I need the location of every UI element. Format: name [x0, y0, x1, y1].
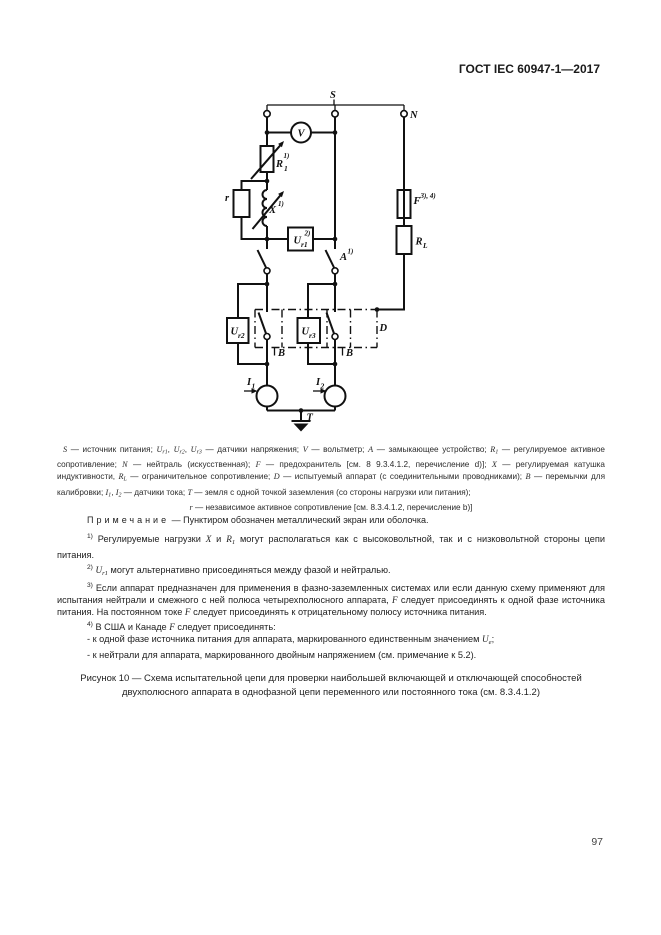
- svg-text:3), 4): 3), 4): [420, 192, 436, 200]
- footnote-4: 4) В США и Канаде F следует присоединять…: [57, 619, 605, 633]
- footnote-1: 1) Регулируемые нагрузки X и R1 могут ра…: [57, 531, 605, 562]
- footnote-2: 2) Ur1 могут альтернативно присоединятьс…: [57, 562, 605, 580]
- svg-text:1): 1): [284, 152, 290, 160]
- apparatus-d-outline: D B B: [255, 310, 388, 360]
- label-a: A: [339, 252, 347, 263]
- label-n: N: [409, 110, 418, 121]
- current-sensor-i1: I 1: [244, 377, 278, 407]
- circuit-diagram: S N V R 1 1): [215, 85, 450, 445]
- page-number: 97: [591, 836, 603, 848]
- svg-text:1): 1): [348, 248, 354, 256]
- footnote-2-marker: 2): [87, 564, 93, 571]
- svg-text:1): 1): [278, 200, 284, 208]
- label-r: r: [225, 193, 230, 204]
- note-label: Примечание: [87, 515, 169, 525]
- figure-legend: S — источник питания; Ur1, Ur2, Ur3 — да…: [57, 444, 605, 502]
- sensor-ur1: U r1 2): [267, 228, 335, 251]
- label-d: D: [379, 323, 388, 334]
- left-branch: R 1 1) r X 1): [225, 117, 289, 386]
- figure-legend-last-line: r — независимое активное сопротивление […: [57, 502, 605, 514]
- svg-text:L: L: [422, 241, 428, 250]
- footnote-4-item-1: - к одной фазе источника питания для апп…: [57, 633, 605, 649]
- svg-text:r1: r1: [301, 240, 308, 249]
- footnote-3-text: Если аппарат предназначен для применения…: [57, 583, 605, 618]
- sensor-ur3: U r3: [298, 284, 336, 364]
- current-sensor-i2: I 2: [313, 377, 346, 407]
- pole-right-icon: [327, 313, 339, 340]
- label-f: F: [413, 196, 421, 207]
- note-paragraph: Примечание — Пунктиром обозначен металли…: [57, 514, 605, 526]
- label-v: V: [298, 129, 306, 140]
- right-branch: F 3), 4) R L: [375, 117, 436, 312]
- document-header-title: ГОСТ IEC 60947-1—2017: [459, 62, 600, 76]
- label-t: T: [307, 413, 314, 424]
- pole-left-icon: [259, 313, 271, 340]
- fuse-f-icon: [398, 190, 411, 218]
- footnote-4-text: В США и Канаде F следует присоединять:: [93, 622, 276, 632]
- figure-caption: Рисунок 10 — Схема испытательной цепи дл…: [57, 672, 605, 700]
- label-rl: R: [415, 237, 423, 248]
- resistor-r-icon: [234, 181, 268, 239]
- label-b-right: B: [345, 348, 353, 359]
- label-x: X: [268, 205, 277, 216]
- switch-left-icon: [258, 250, 271, 274]
- footnote-1-text: Регулируемые нагрузки X и R1 могут распо…: [57, 534, 605, 560]
- text-column: Примечание — Пунктиром обозначен металли…: [57, 514, 605, 700]
- ground-icon: T: [267, 407, 335, 432]
- note-text: — Пунктиром обозначен металлический экра…: [169, 515, 428, 525]
- footnote-4-item-2: - к нейтрали для аппарата, маркированног…: [57, 649, 605, 661]
- svg-text:2): 2): [304, 230, 311, 238]
- svg-text:1: 1: [284, 164, 288, 173]
- supply-bus: S N: [264, 90, 418, 121]
- label-b-left: B: [277, 348, 285, 359]
- middle-branch: A 1): [326, 117, 354, 386]
- svg-text:r2: r2: [238, 331, 245, 340]
- label-s: S: [330, 90, 336, 101]
- footnote-3: 3) Если аппарат предназначен для примене…: [57, 580, 605, 619]
- svg-text:r3: r3: [309, 331, 316, 340]
- switch-a-icon: [326, 250, 339, 274]
- resistor-rl-icon: [397, 226, 412, 254]
- sensor-ur2: U r2: [227, 284, 267, 364]
- document-page: ГОСТ IEC 60947-1—2017 S N V: [0, 0, 661, 935]
- figure-legend-block: S — источник питания; Ur1, Ur2, Ur3 — да…: [57, 444, 605, 514]
- label-r1: R: [275, 159, 283, 170]
- footnote-2-text: Ur1 могут альтернативно присоединяться м…: [93, 565, 391, 575]
- voltmeter-icon: V: [265, 123, 338, 143]
